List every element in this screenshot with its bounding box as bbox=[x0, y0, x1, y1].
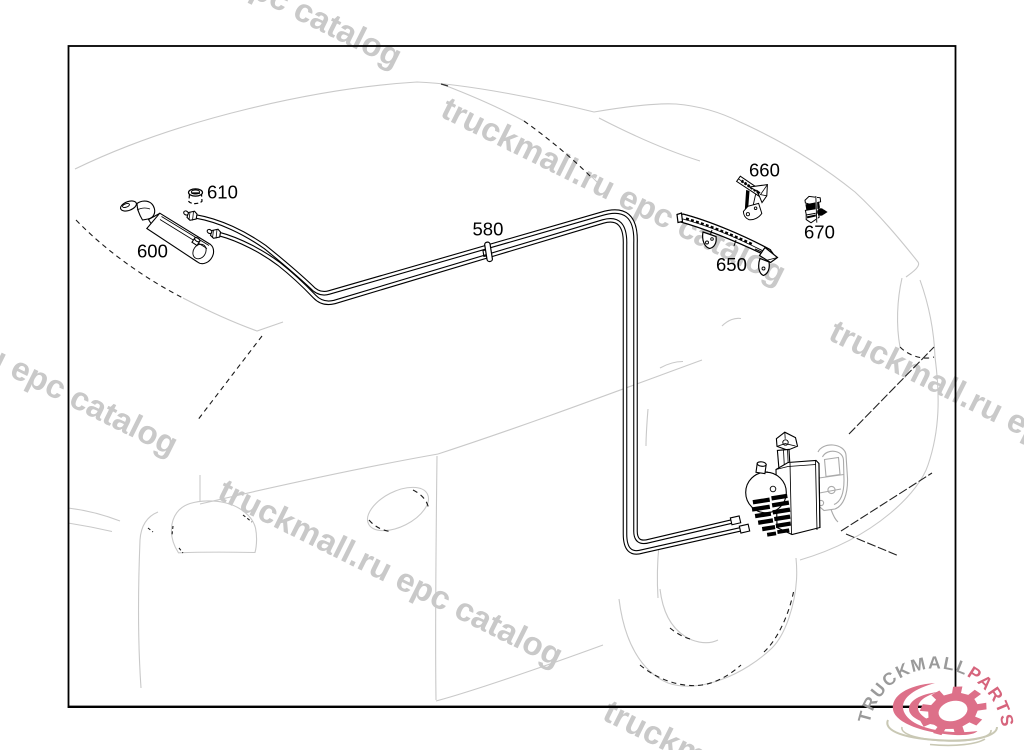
svg-text:670: 670 bbox=[804, 222, 835, 243]
svg-text:610: 610 bbox=[207, 182, 238, 203]
svg-text:650: 650 bbox=[716, 254, 747, 275]
svg-text:600: 600 bbox=[137, 241, 168, 262]
svg-text:660: 660 bbox=[749, 160, 780, 181]
svg-text:580: 580 bbox=[473, 219, 504, 240]
